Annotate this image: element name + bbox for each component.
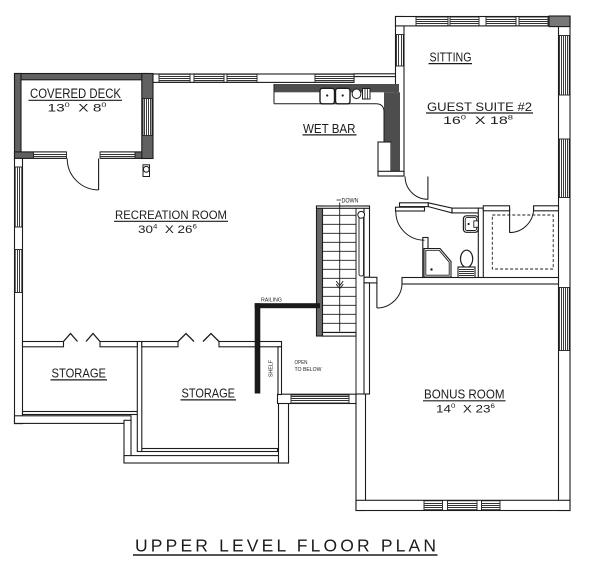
svg-text:DOWN: DOWN <box>342 198 359 204</box>
svg-text:RECREATION ROOM: RECREATION ROOM <box>115 208 227 222</box>
svg-text:160 X 188: 160 X 188 <box>443 114 514 127</box>
svg-text:OPEN: OPEN <box>295 360 308 366</box>
svg-text:140 X 236: 140 X 236 <box>436 403 495 416</box>
svg-text:STORAGE: STORAGE <box>182 386 236 401</box>
svg-text:WET BAR: WET BAR <box>303 122 356 136</box>
svg-text:SITTING: SITTING <box>430 51 472 65</box>
svg-text:STORAGE: STORAGE <box>52 366 107 381</box>
svg-text:UPPER LEVEL FLOOR PLAN: UPPER LEVEL FLOOR PLAN <box>135 536 436 556</box>
svg-text:COVERED DECK: COVERED DECK <box>30 86 121 101</box>
svg-text:130 X 80: 130 X 80 <box>48 102 108 115</box>
svg-text:RAILING: RAILING <box>261 298 282 304</box>
svg-text:304 X 266: 304 X 266 <box>138 224 197 237</box>
svg-text:GUEST SUITE #2: GUEST SUITE #2 <box>427 100 532 114</box>
svg-text:TO BELOW: TO BELOW <box>295 367 323 373</box>
svg-text:BONUS ROOM: BONUS ROOM <box>424 387 505 402</box>
svg-text:SHELF: SHELF <box>269 359 275 377</box>
